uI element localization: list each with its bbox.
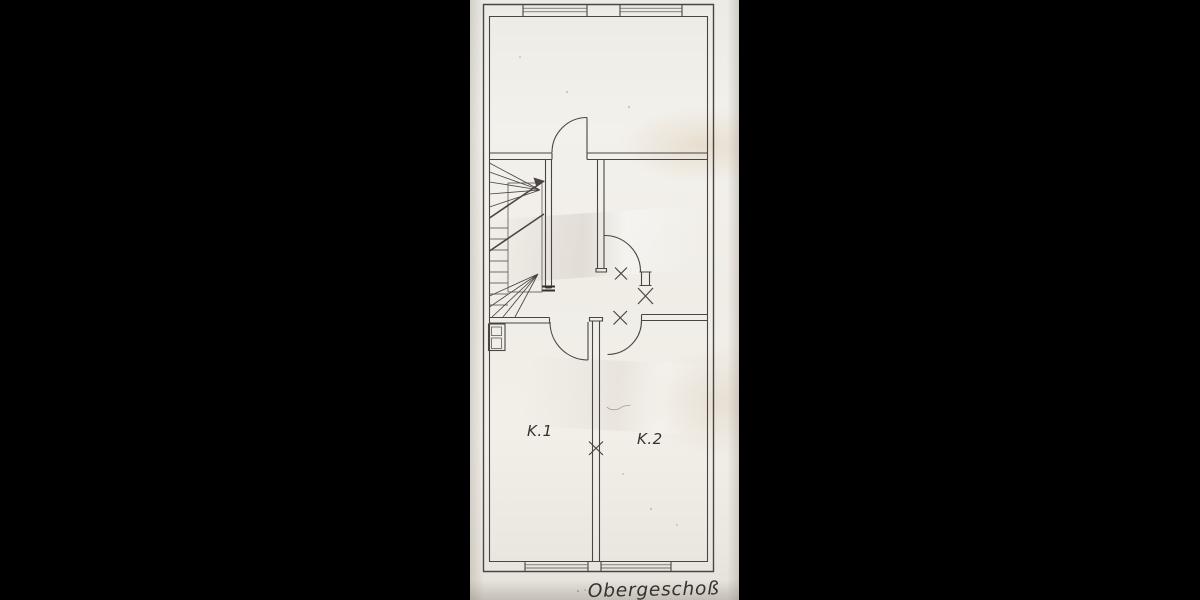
door-hall-right-room [605,236,641,272]
divider-wall [590,318,603,562]
door-arc [605,236,641,272]
x-mark [615,268,627,280]
room-label-k1: K.1 [527,422,553,440]
door-k1 [550,322,588,360]
plan-paper: K.1 K.2 Obergeschoß [470,0,739,600]
x-mark [638,288,653,304]
x-mark [614,311,628,325]
room-label-k2: K.2 [637,430,663,448]
door-arc [550,322,588,360]
window-top-right [620,5,682,17]
door-k2 [608,321,642,355]
door-arc [608,321,642,355]
opening-x-marks [589,268,653,456]
interior-wall-top [490,153,708,160]
window-top-left [523,5,587,17]
pencil-marks [519,56,678,592]
scanned-floor-plan-photo: { "plan": { "floor_label": "Obergeschoß"… [0,0,1200,600]
door-arc [552,118,587,153]
letterbox-right [739,0,1200,600]
hall-wall [596,160,607,273]
window-bottom-left [525,562,588,572]
right-room-walls [640,272,708,321]
wall-jamb-cap [596,269,607,273]
floor-label: Obergeschoß [588,578,720,600]
staircase [490,163,546,317]
stair-winders-lower [490,274,539,317]
window-bottom-right [601,562,671,572]
wall-stub [640,272,652,286]
letterbox-left [0,0,470,600]
floor-plan-drawing: K.1 K.2 Obergeschoß [470,0,739,600]
chimney-symbol [489,324,506,351]
door-top-room [552,118,587,154]
wall-jamb-cap [590,318,603,322]
x-mark [589,442,603,456]
